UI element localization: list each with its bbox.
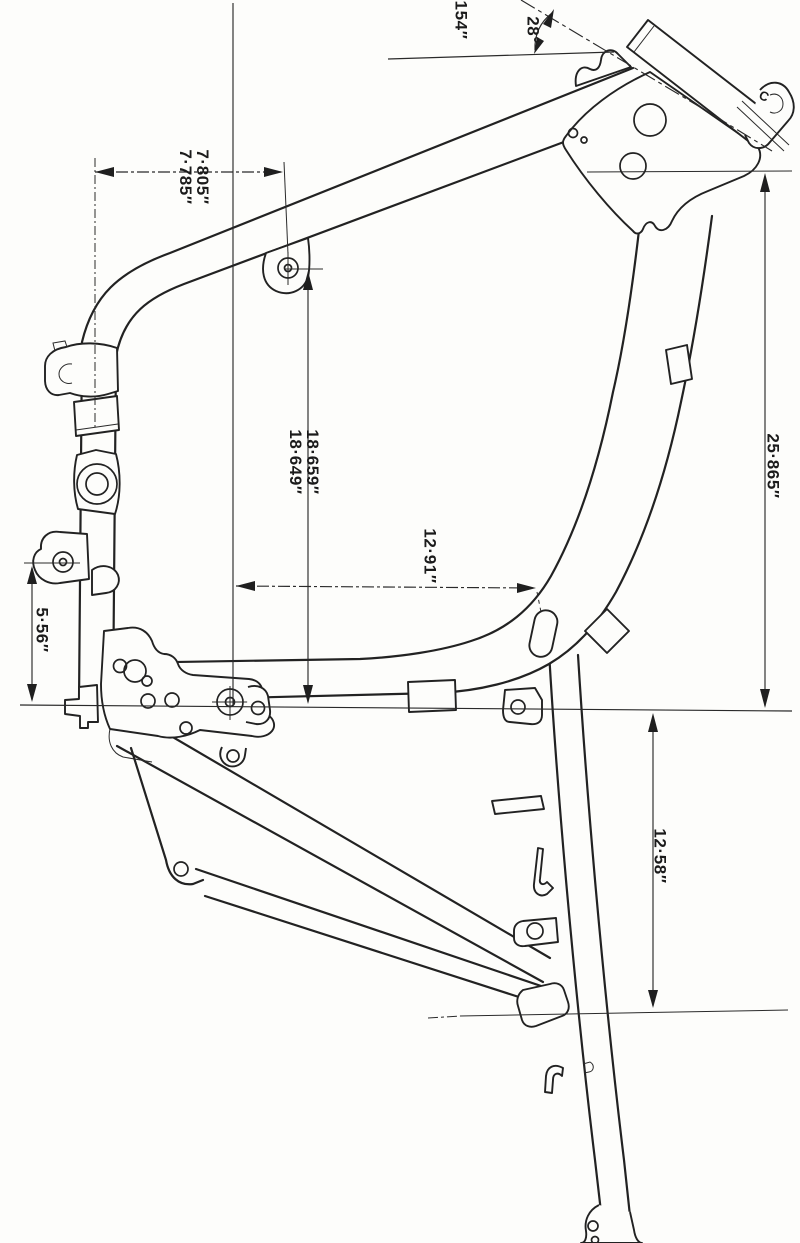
dimension-mid-height-upper: 18·659″ (304, 429, 321, 494)
dimension-front-offset-lower: 7·785″ (177, 149, 194, 204)
dimension-rear-height: 25·865″ (765, 433, 782, 498)
dimension-front-offset: 7·805″ 7·785″ (177, 149, 211, 204)
frame-line-drawing (0, 0, 800, 1243)
dimension-bend-offset: 12·91″ (422, 528, 439, 583)
dimension-steering-head-angle: 28° (525, 16, 542, 44)
frame-drawing-page: 154″ 28° C 7·805″ 7·785″ 18·659″ 18·649″… (0, 0, 800, 1243)
dimension-steering-axis-length: 154″ (453, 1, 470, 40)
dimension-mid-height-lower: 18·649″ (287, 429, 304, 494)
dimension-mid-height: 18·659″ 18·649″ (287, 429, 321, 494)
dimension-subframe-drop: 12·58″ (652, 828, 669, 883)
dimension-front-lug-height: 5·56″ (34, 607, 51, 652)
dimension-front-offset-upper: 7·805″ (194, 149, 211, 204)
rear-subframe-tube (549, 652, 630, 1216)
chainstay-tubes (117, 712, 550, 1007)
